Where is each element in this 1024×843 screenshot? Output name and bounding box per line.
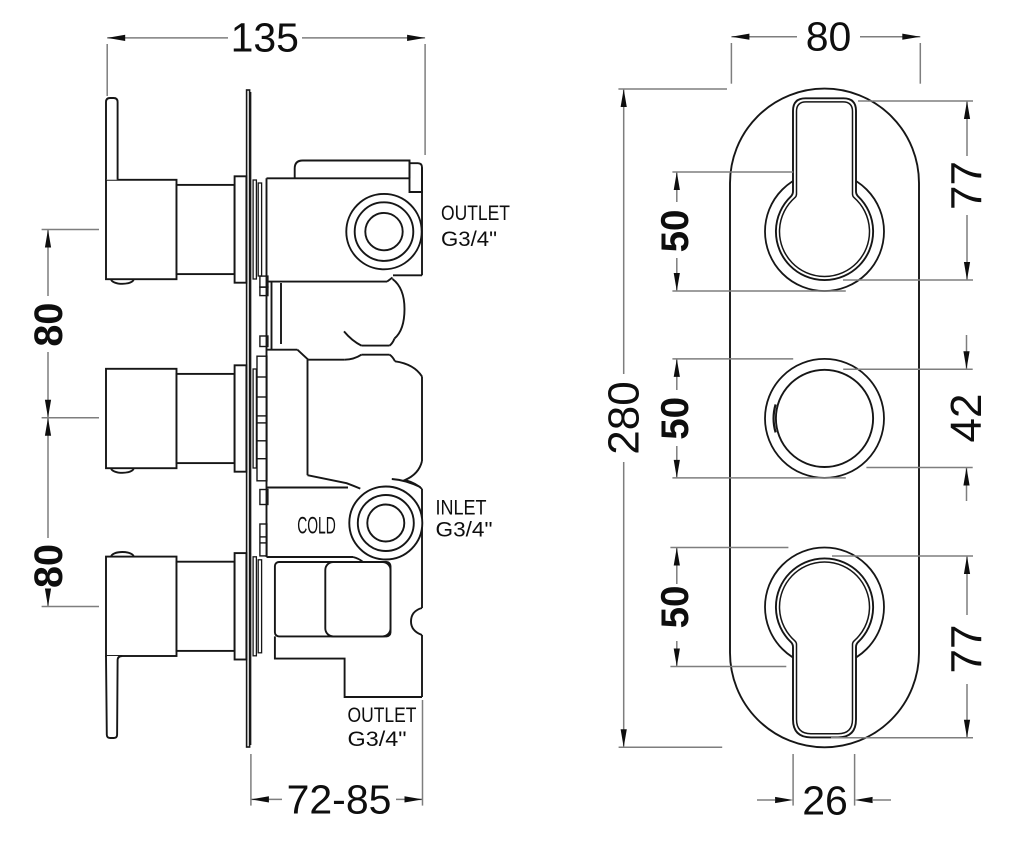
svg-text:50: 50 [654, 210, 697, 253]
svg-text:G3/4": G3/4" [441, 227, 497, 251]
svg-text:42: 42 [942, 394, 991, 443]
svg-text:50: 50 [654, 586, 697, 629]
svg-text:135: 135 [231, 15, 299, 61]
svg-text:80: 80 [27, 544, 71, 588]
svg-text:280: 280 [600, 381, 649, 454]
svg-text:G3/4": G3/4" [348, 727, 407, 751]
svg-text:26: 26 [802, 778, 848, 824]
svg-text:80: 80 [806, 14, 852, 60]
svg-text:G3/4": G3/4" [436, 518, 493, 542]
svg-text:72-85: 72-85 [287, 777, 392, 823]
svg-text:OUTLET: OUTLET [348, 703, 417, 727]
svg-text:77: 77 [943, 625, 992, 674]
svg-text:COLD: COLD [297, 513, 336, 540]
svg-text:OUTLET: OUTLET [441, 201, 510, 225]
svg-text:80: 80 [27, 303, 71, 347]
svg-text:INLET: INLET [436, 496, 487, 520]
svg-text:77: 77 [943, 161, 992, 210]
svg-text:50: 50 [654, 397, 697, 440]
